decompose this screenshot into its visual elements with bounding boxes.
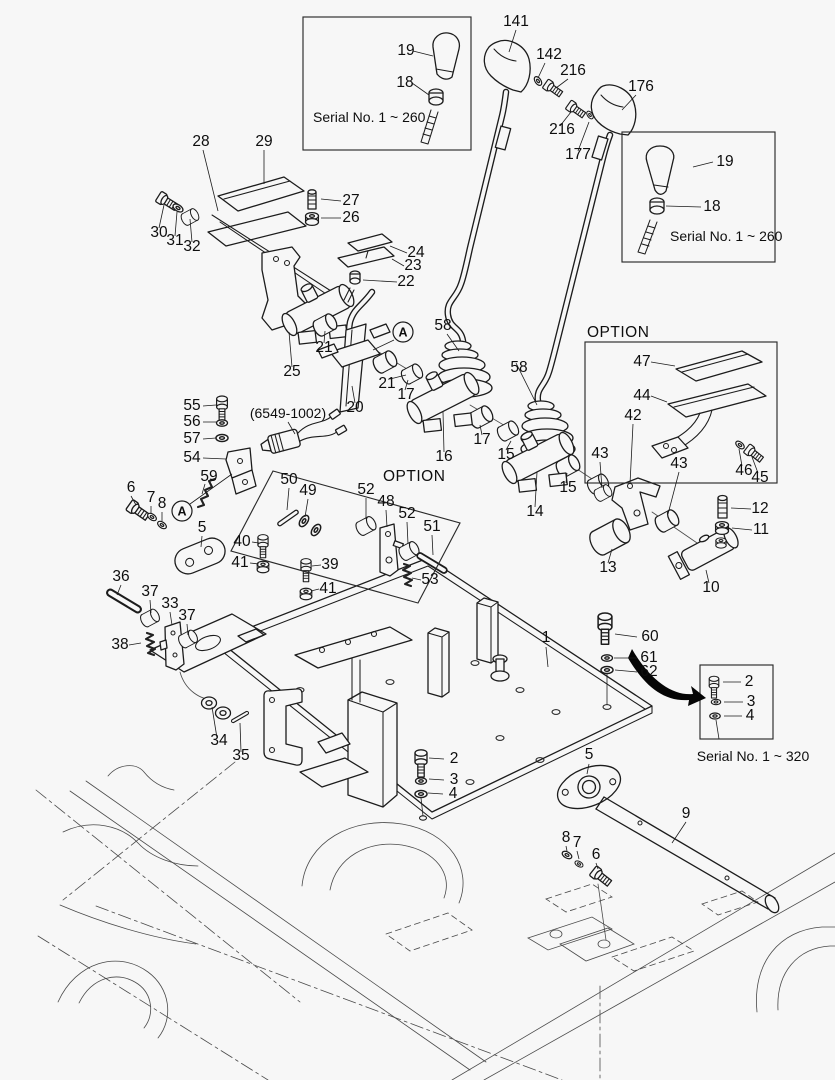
part-number-7: 7 (573, 834, 582, 851)
part-number-27: 27 (342, 192, 359, 209)
part-number-52: 52 (398, 505, 415, 522)
part-number-5: 5 (585, 746, 594, 763)
option-label-left: OPTION (383, 468, 445, 485)
part-number-41: 41 (231, 554, 248, 571)
part-number-60: 60 (641, 628, 659, 645)
part-number-51: 51 (423, 518, 440, 535)
part-number-2: 2 (745, 673, 754, 690)
part-number-31: 31 (166, 232, 183, 249)
part-number-53: 53 (421, 571, 438, 588)
part-number-8: 8 (562, 829, 571, 846)
part-number-11: 11 (753, 521, 769, 538)
parts-diagram-page: Serial No. 1 ~ 260 Serial No. 1 ~ 260 OP… (0, 0, 835, 1080)
part-number-35: 35 (232, 747, 249, 764)
part-number-56: 56 (183, 413, 200, 430)
serial-range-label-top-left: Serial No. 1 ~ 260 (313, 109, 426, 125)
part-number-216: 216 (560, 62, 586, 79)
part-number-141: 141 (503, 13, 529, 30)
part-number-43: 43 (670, 455, 687, 472)
part-number-176: 176 (628, 78, 654, 95)
part-number-40: 40 (233, 533, 251, 550)
part-number-26: 26 (342, 209, 359, 226)
part-number-21: 21 (315, 339, 332, 356)
svg-text:A: A (398, 326, 407, 340)
part-number-48: 48 (377, 493, 394, 510)
part-number-2: 2 (450, 750, 459, 767)
part-number-52: 52 (357, 481, 374, 498)
part-number-44: 44 (633, 387, 651, 404)
part-number-4: 4 (449, 785, 458, 802)
part-number-28: 28 (192, 133, 209, 150)
part-number-25: 25 (283, 363, 300, 380)
reference-code-label: (6549-1002) (250, 405, 326, 421)
part-number-12: 12 (751, 500, 768, 517)
option-label-right: OPTION (587, 324, 649, 341)
part-number-58: 58 (510, 359, 527, 376)
part-number-7: 7 (147, 489, 156, 506)
part-number-21: 21 (378, 375, 395, 392)
part-number-50: 50 (280, 471, 298, 488)
part-number-216: 216 (549, 121, 575, 138)
part-number-15: 15 (559, 479, 576, 496)
part-number-46: 46 (735, 462, 752, 479)
part-number-14: 14 (526, 503, 544, 520)
part-number-43: 43 (591, 445, 608, 462)
part-number-18: 18 (703, 198, 720, 215)
part-number-36: 36 (112, 568, 129, 585)
part-number-16: 16 (435, 448, 452, 465)
part-number-5: 5 (198, 519, 207, 536)
part-number-18: 18 (396, 74, 413, 91)
part-number-39: 39 (321, 556, 338, 573)
part-number-17: 17 (397, 386, 414, 403)
part-number-49: 49 (299, 482, 316, 499)
part-number-1: 1 (542, 629, 551, 646)
part-number-10: 10 (702, 579, 720, 596)
exploded-parts-diagram: Serial No. 1 ~ 260 Serial No. 1 ~ 260 OP… (0, 0, 835, 1080)
part-number-19: 19 (716, 153, 733, 170)
part-number-47: 47 (633, 353, 650, 370)
part-number-45: 45 (751, 469, 768, 486)
part-number-34: 34 (210, 732, 228, 749)
part-number-29: 29 (255, 133, 272, 150)
part-number-59: 59 (200, 468, 217, 485)
part-number-17: 17 (473, 431, 490, 448)
svg-text:A: A (177, 505, 186, 519)
part-number-38: 38 (111, 636, 128, 653)
part-number-6: 6 (592, 846, 601, 863)
part-number-42: 42 (624, 407, 641, 424)
part-number-58: 58 (434, 317, 451, 334)
part-number-55: 55 (183, 397, 200, 414)
part-number-30: 30 (150, 224, 168, 241)
part-number-37: 37 (141, 583, 158, 600)
part-number-32: 32 (183, 238, 200, 255)
part-number-41: 41 (319, 580, 336, 597)
part-number-15: 15 (497, 446, 514, 463)
part-number-9: 9 (682, 805, 691, 822)
part-number-6: 6 (127, 479, 136, 496)
serial-range-label-bottom-right: Serial No. 1 ~ 320 (697, 748, 810, 764)
part-number-33: 33 (161, 595, 178, 612)
part-number-20: 20 (346, 399, 364, 416)
part-number-19: 19 (397, 42, 414, 59)
part-number-177: 177 (565, 146, 591, 163)
part-number-23: 23 (404, 257, 421, 274)
part-number-37: 37 (178, 607, 195, 624)
part-number-13: 13 (599, 559, 616, 576)
part-number-142: 142 (536, 46, 562, 63)
part-number-57: 57 (183, 430, 200, 447)
part-number-8: 8 (158, 495, 167, 512)
part-number-62: 62 (640, 663, 657, 680)
part-number-54: 54 (183, 449, 201, 466)
part-number-22: 22 (397, 273, 414, 290)
part-number-4: 4 (746, 707, 755, 724)
serial-range-label-right: Serial No. 1 ~ 260 (670, 228, 783, 244)
